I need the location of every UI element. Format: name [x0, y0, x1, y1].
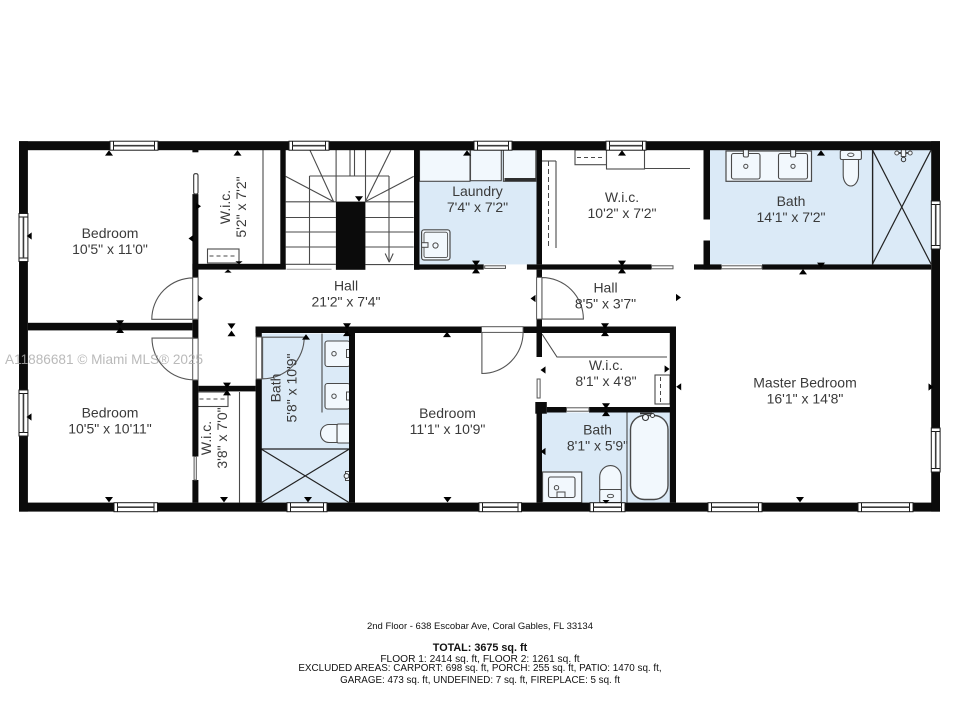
svg-text:Bedroom: Bedroom [419, 405, 476, 421]
svg-text:Laundry: Laundry [452, 183, 503, 199]
svg-text:Master Bedroom: Master Bedroom [753, 375, 856, 391]
svg-text:7'4" x 7'2": 7'4" x 7'2" [447, 199, 508, 215]
svg-text:16'1" x 14'8": 16'1" x 14'8" [767, 391, 844, 407]
svg-text:Bath: Bath [777, 193, 806, 209]
svg-text:Bedroom: Bedroom [82, 225, 139, 241]
svg-text:W.i.c.: W.i.c. [217, 190, 233, 224]
svg-text:21'2" x 7'4": 21'2" x 7'4" [312, 294, 381, 310]
svg-text:A11886681 © Miami MLS® 2025: A11886681 © Miami MLS® 2025 [5, 352, 203, 367]
svg-text:5'2" x 7'2": 5'2" x 7'2" [233, 176, 249, 237]
svg-text:5'8" x 10'9": 5'8" x 10'9" [284, 353, 300, 422]
svg-text:10'5" x 11'0": 10'5" x 11'0" [72, 241, 148, 257]
svg-text:11'1" x 10'9": 11'1" x 10'9" [410, 421, 486, 437]
svg-text:14'1" x 7'2": 14'1" x 7'2" [757, 209, 826, 225]
svg-text:8'1" x 4'8": 8'1" x 4'8" [575, 373, 636, 389]
svg-text:8'1" x 5'9": 8'1" x 5'9" [567, 438, 628, 454]
svg-text:8'5" x 3'7": 8'5" x 3'7" [575, 296, 636, 312]
svg-text:Bath: Bath [268, 374, 284, 403]
svg-text:W.i.c.: W.i.c. [589, 357, 623, 373]
svg-text:Hall: Hall [593, 280, 617, 296]
svg-text:3'8" x 7'0": 3'8" x 7'0" [214, 407, 230, 468]
svg-text:Hall: Hall [334, 278, 358, 294]
svg-text:Bedroom: Bedroom [82, 405, 139, 421]
svg-text:10'2" x 7'2": 10'2" x 7'2" [588, 205, 657, 221]
svg-text:W.i.c.: W.i.c. [605, 189, 639, 205]
svg-text:W.i.c.: W.i.c. [198, 421, 214, 455]
svg-text:10'5" x 10'11": 10'5" x 10'11" [68, 421, 152, 437]
svg-text:Bath: Bath [583, 422, 612, 438]
